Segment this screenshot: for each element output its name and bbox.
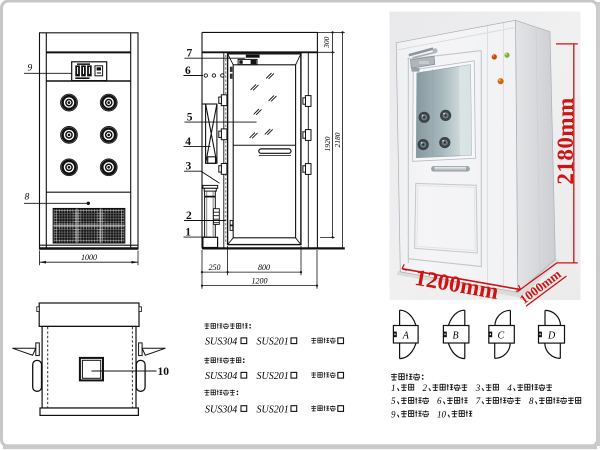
svg-text:SUS201: SUS201 — [257, 337, 289, 348]
svg-text:1200: 1200 — [252, 276, 268, 285]
svg-text:B: B — [453, 331, 459, 342]
svg-text:9: 9 — [28, 64, 33, 74]
svg-text:2180mm: 2180mm — [553, 97, 578, 184]
svg-text:A: A — [402, 331, 410, 342]
svg-text:1: 1 — [391, 383, 396, 393]
svg-text:2: 2 — [422, 383, 427, 393]
svg-text:D: D — [547, 331, 556, 342]
svg-text:800: 800 — [258, 263, 270, 272]
svg-text:250: 250 — [209, 263, 221, 272]
svg-text:C: C — [498, 331, 505, 342]
svg-text:10: 10 — [158, 366, 170, 378]
svg-text:SUS304: SUS304 — [205, 404, 237, 415]
svg-text:6: 6 — [437, 396, 442, 406]
svg-text:5: 5 — [391, 396, 396, 406]
svg-text:1920: 1920 — [323, 136, 332, 151]
svg-text:3: 3 — [475, 383, 481, 393]
svg-text:2180: 2180 — [333, 132, 342, 147]
svg-text:300: 300 — [322, 36, 331, 49]
svg-text:SUS201: SUS201 — [257, 371, 289, 382]
svg-text:SUS304: SUS304 — [205, 371, 237, 382]
svg-text:4: 4 — [507, 383, 512, 393]
svg-text:8: 8 — [25, 193, 30, 203]
svg-text:SUS201: SUS201 — [257, 404, 289, 415]
svg-text:7: 7 — [476, 396, 481, 406]
svg-text:9: 9 — [391, 409, 396, 419]
svg-text:10: 10 — [437, 409, 447, 419]
svg-text:SUS304: SUS304 — [205, 337, 237, 348]
svg-text:1000: 1000 — [81, 253, 97, 262]
svg-text:7: 7 — [187, 47, 193, 59]
svg-text:8: 8 — [529, 396, 534, 406]
